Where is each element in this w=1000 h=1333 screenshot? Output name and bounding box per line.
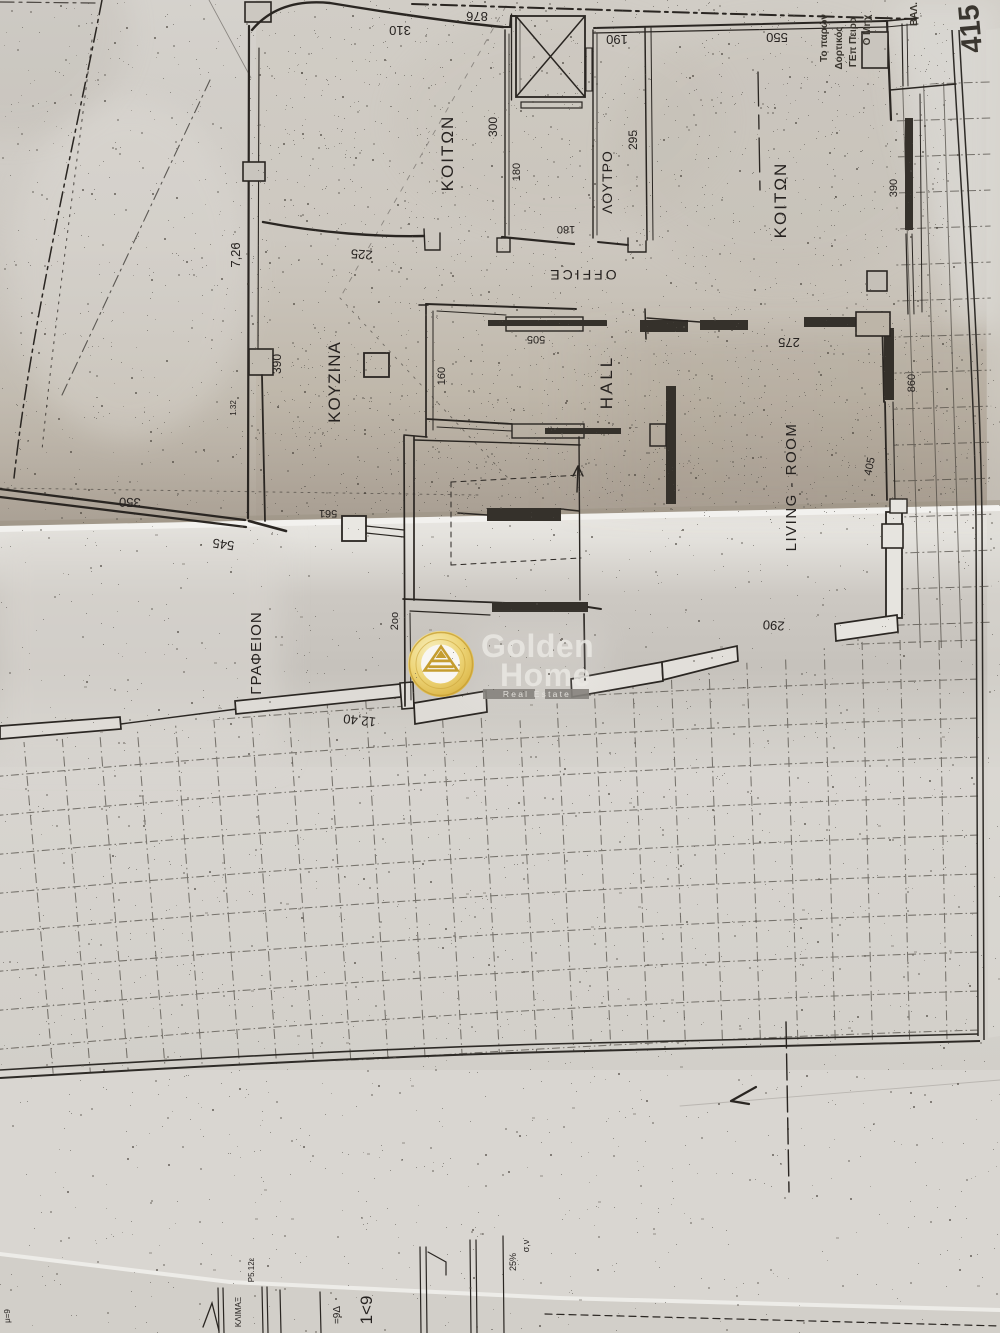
svg-text:=9Δ: =9Δ <box>332 1306 343 1324</box>
svg-text:Δορτικός: Δορτικός <box>834 27 845 70</box>
svg-text:180: 180 <box>511 163 523 181</box>
svg-text:415: 415 <box>953 3 989 54</box>
svg-text:160: 160 <box>436 367 448 385</box>
svg-text:350: 350 <box>119 495 141 511</box>
svg-text:876: 876 <box>466 9 488 24</box>
svg-text:550: 550 <box>766 30 788 45</box>
svg-text:HALL: HALL <box>597 355 616 410</box>
svg-text:LIVING - ROOM: LIVING - ROOM <box>783 423 800 552</box>
svg-text:310: 310 <box>389 23 411 38</box>
svg-text:505: 505 <box>527 333 545 345</box>
svg-text:7,26: 7,26 <box>228 242 243 267</box>
svg-text:σ,ν: σ,ν <box>521 1239 531 1252</box>
svg-text:OFFICE: OFFICE <box>547 267 616 283</box>
svg-text:290: 290 <box>762 617 785 633</box>
svg-text:2oo: 2oo <box>389 612 401 630</box>
svg-text:180: 180 <box>557 223 575 235</box>
svg-text:225: 225 <box>350 246 373 262</box>
svg-text:1<9: 1<9 <box>357 1296 376 1325</box>
svg-text:μ=9: μ=9 <box>3 1309 12 1323</box>
svg-text:ΓΕπ Πειρα: ΓΕπ Πειρα <box>848 16 859 67</box>
svg-text:390: 390 <box>888 179 900 197</box>
svg-text:ΒΑΛ.: ΒΑΛ. <box>909 2 920 26</box>
svg-text:ΛΟΥΤΡΟ: ΛΟΥΤΡΟ <box>599 150 615 214</box>
svg-text:390: 390 <box>270 354 284 374</box>
svg-text:561: 561 <box>319 507 337 519</box>
svg-text:Home: Home <box>500 657 591 693</box>
svg-text:Ο Μηχ: Ο Μηχ <box>862 14 873 45</box>
svg-text:190: 190 <box>606 32 628 47</box>
svg-text:KOYZINA: KOYZINA <box>325 341 344 423</box>
svg-text:25%: 25% <box>508 1253 518 1271</box>
svg-text:Το παρών: Το παρών <box>819 14 830 62</box>
svg-text:295: 295 <box>626 130 640 150</box>
svg-text:860: 860 <box>906 374 918 392</box>
svg-text:300: 300 <box>486 117 500 137</box>
svg-text:Ρ5.12ε: Ρ5.12ε <box>247 1257 256 1282</box>
svg-text:545: 545 <box>212 536 236 554</box>
svg-text:1.32: 1.32 <box>229 400 238 416</box>
svg-text:ΚΛΙΜΑΞ: ΚΛΙΜΑΞ <box>234 1297 243 1327</box>
svg-text:ΓΡΑΦΕΙΟΝ: ΓΡΑΦΕΙΟΝ <box>248 611 265 694</box>
svg-text:KOITΩN: KOITΩN <box>771 162 790 239</box>
svg-text:Real Estate: Real Estate <box>503 689 571 699</box>
svg-text:275: 275 <box>778 335 800 350</box>
svg-text:KOITΩN: KOITΩN <box>438 115 457 192</box>
